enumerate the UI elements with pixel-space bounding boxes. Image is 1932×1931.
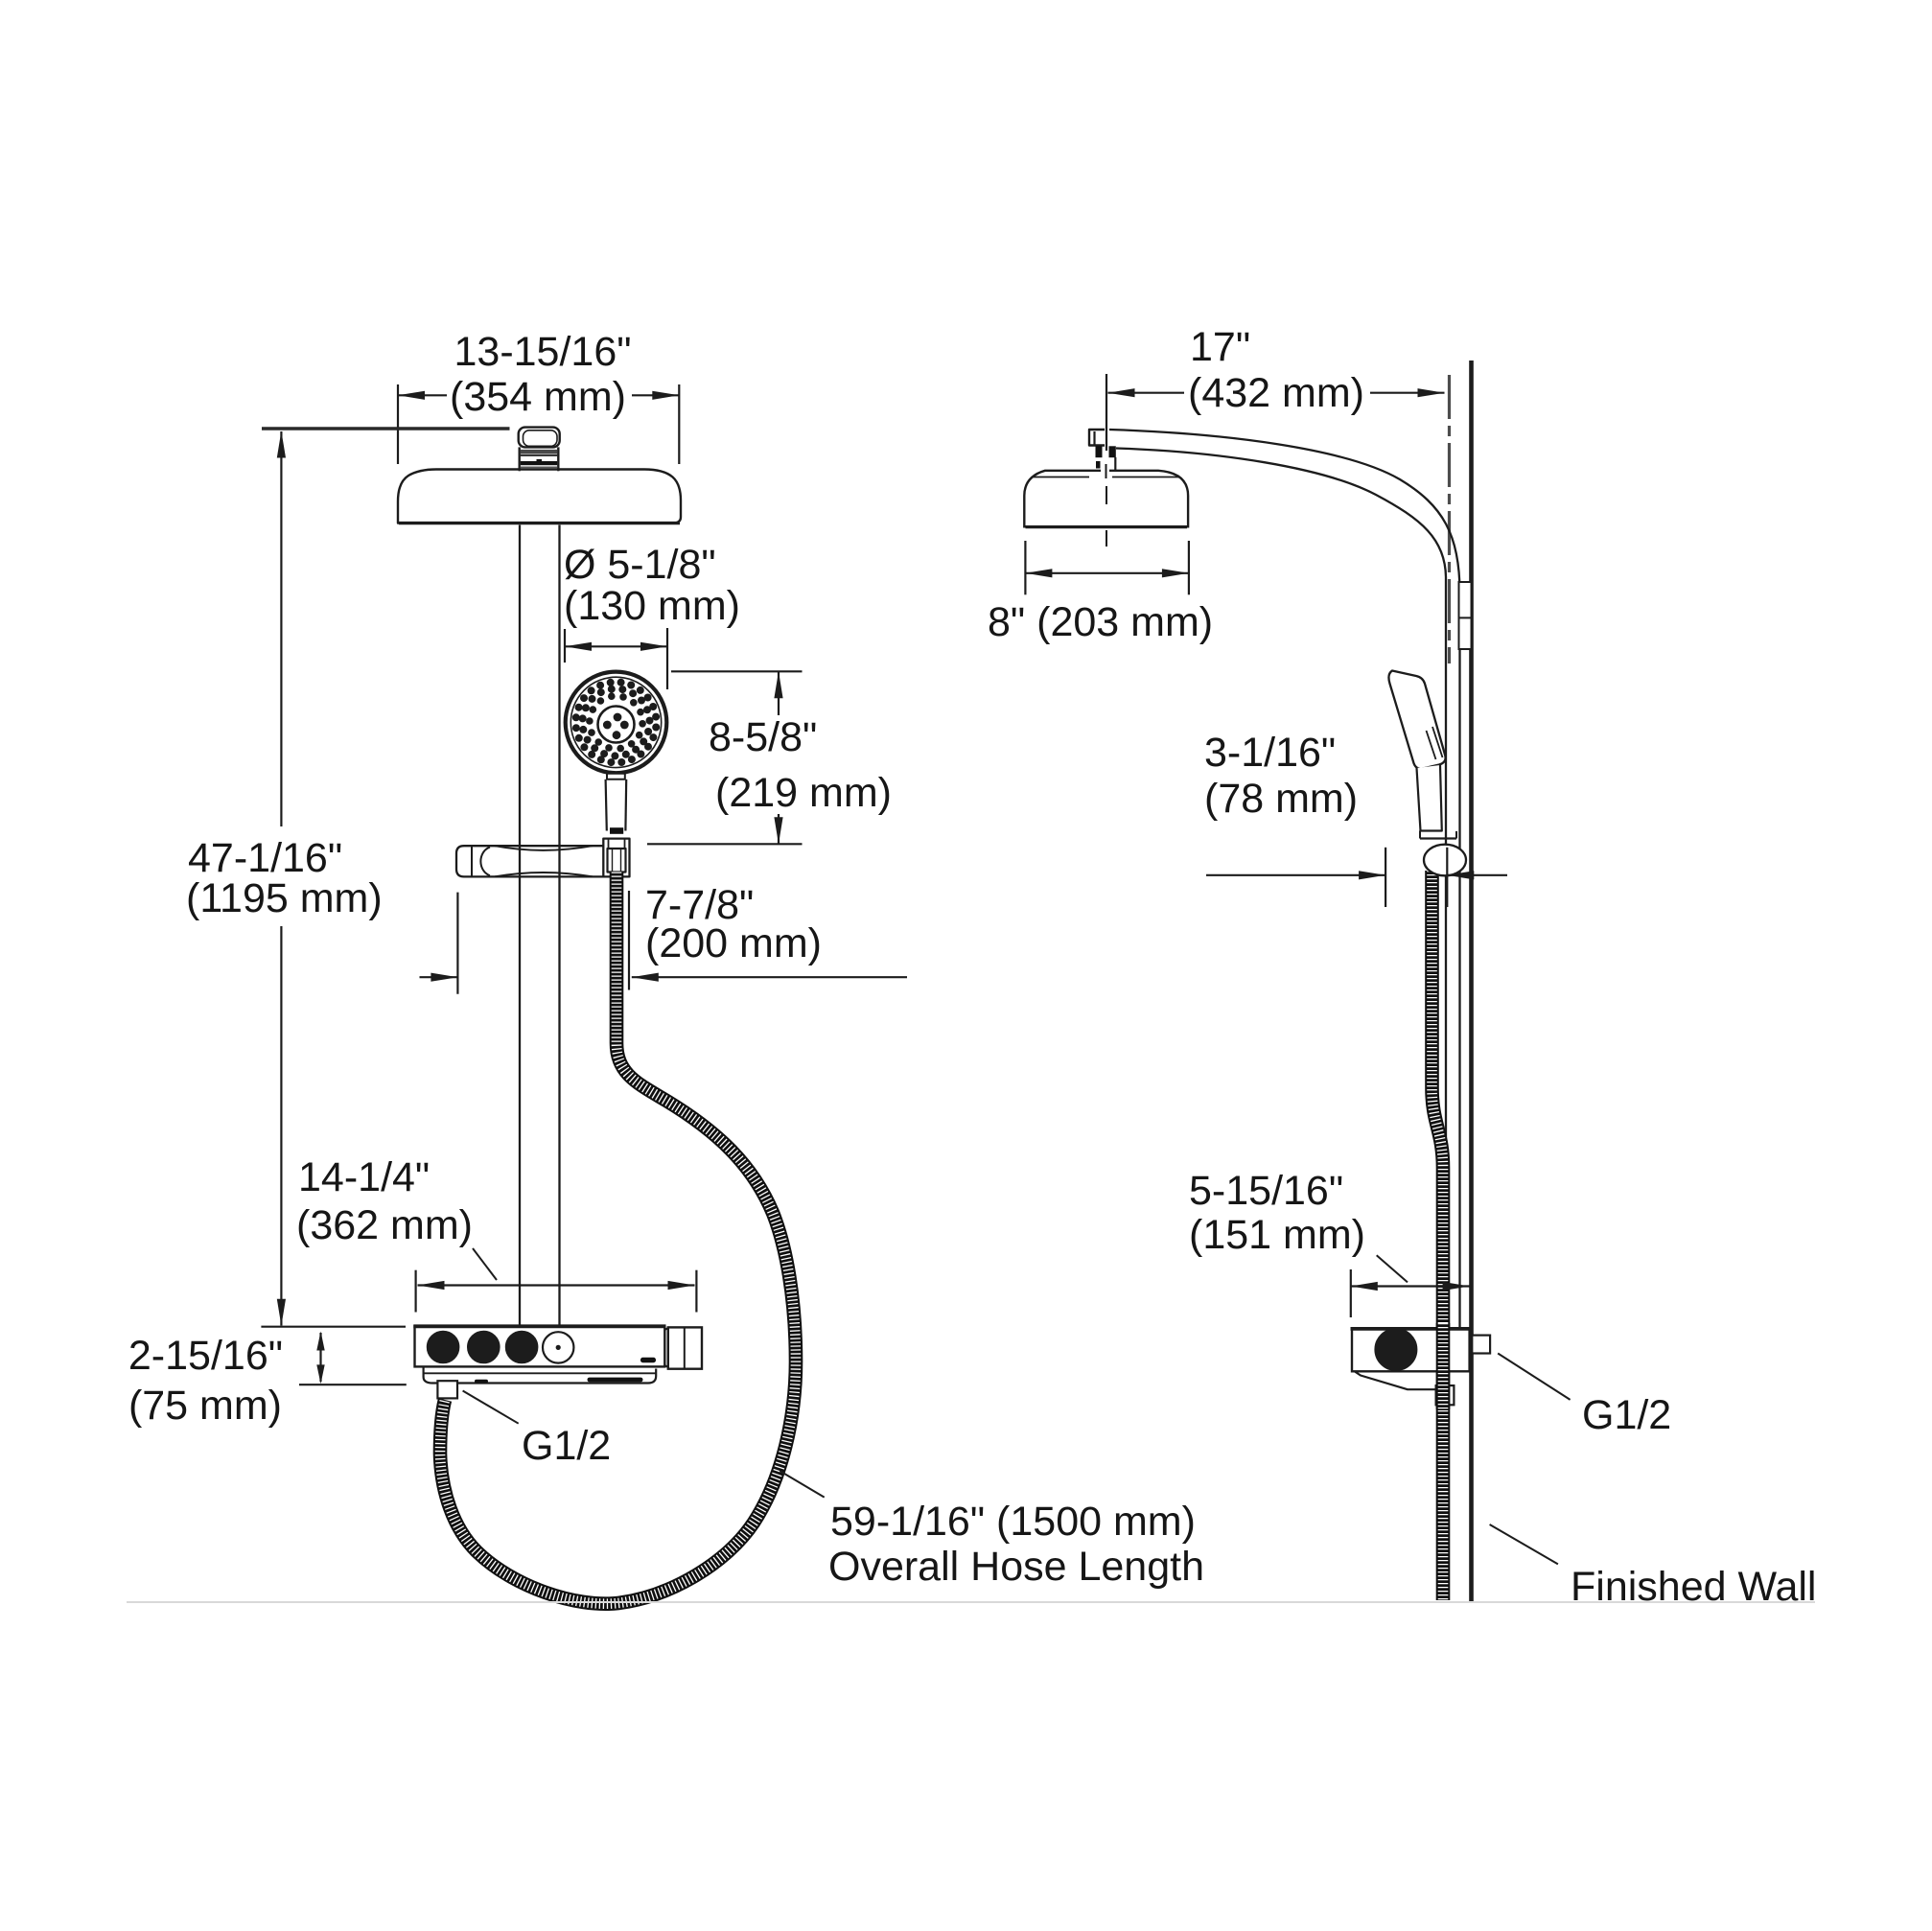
svg-text:(130 mm): (130 mm): [564, 583, 740, 629]
svg-text:G1/2: G1/2: [1582, 1392, 1671, 1438]
svg-text:8-5/8": 8-5/8": [709, 714, 817, 760]
svg-text:59-1/16" (1500 mm): 59-1/16" (1500 mm): [830, 1499, 1196, 1545]
svg-text:(78 mm): (78 mm): [1204, 776, 1358, 822]
svg-text:13-15/16": 13-15/16": [454, 329, 631, 375]
svg-text:(362 mm): (362 mm): [296, 1202, 473, 1248]
svg-text:14-1/4": 14-1/4": [298, 1154, 430, 1200]
svg-text:(432 mm): (432 mm): [1188, 370, 1364, 416]
svg-text:17": 17": [1190, 324, 1250, 370]
svg-text:5-15/16": 5-15/16": [1189, 1168, 1343, 1214]
svg-text:(200 mm): (200 mm): [645, 920, 822, 966]
svg-text:(151 mm): (151 mm): [1189, 1212, 1365, 1258]
svg-text:Ø 5-1/8": Ø 5-1/8": [564, 542, 716, 588]
svg-text:(1195 mm): (1195 mm): [186, 875, 383, 921]
svg-text:47-1/16": 47-1/16": [188, 835, 342, 881]
svg-text:Overall Hose Length: Overall Hose Length: [828, 1544, 1204, 1590]
svg-text:G1/2: G1/2: [522, 1423, 611, 1469]
svg-text:(75 mm): (75 mm): [128, 1383, 282, 1429]
svg-text:8" (203 mm): 8" (203 mm): [988, 599, 1213, 645]
svg-text:2-15/16": 2-15/16": [128, 1333, 283, 1379]
svg-text:(219 mm): (219 mm): [715, 770, 892, 816]
svg-text:3-1/16": 3-1/16": [1204, 730, 1336, 776]
svg-text:(354 mm): (354 mm): [450, 374, 626, 420]
